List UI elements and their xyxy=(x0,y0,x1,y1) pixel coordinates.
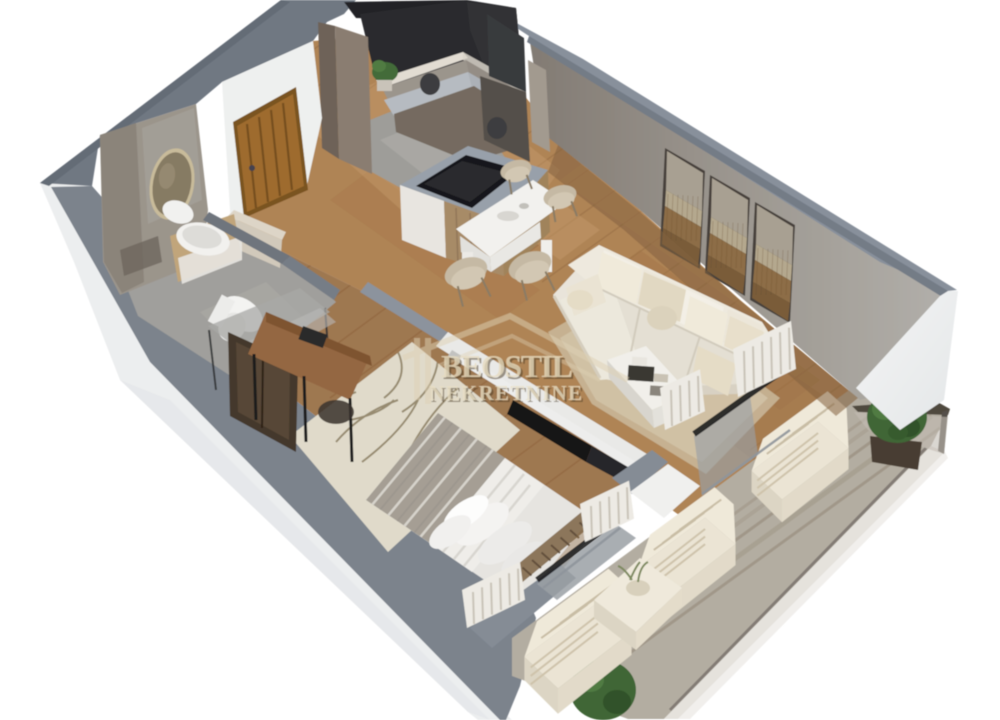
svg-text:BEOSTIL: BEOSTIL xyxy=(441,348,573,384)
svg-text:NEKRETNINE: NEKRETNINE xyxy=(429,381,582,405)
